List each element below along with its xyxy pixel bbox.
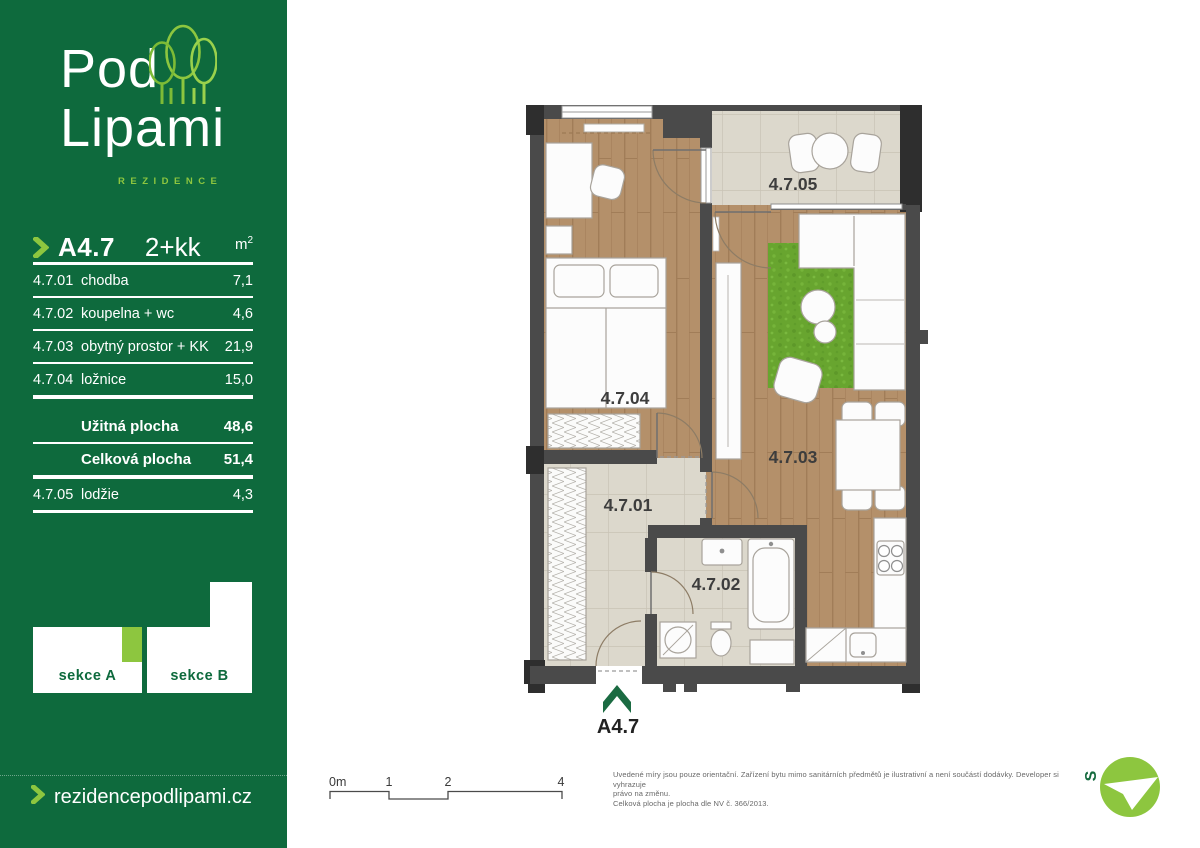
hallway-label: 4.7.01 [604,495,653,515]
dishwasher [806,628,846,662]
loggia-label: 4.7.05 [769,174,818,194]
radiator [584,124,644,132]
entry-opening [596,666,642,684]
svg-text:0m: 0m [329,775,346,789]
cabinet [716,263,741,459]
entry-unit-label: A4.7 [597,716,639,738]
desk [546,143,592,218]
living-room-label: 4.7.03 [769,447,818,467]
svg-text:1: 1 [386,775,393,789]
wardrobe [548,468,586,660]
dresser [548,414,640,448]
washing-machine [660,622,696,658]
svg-text:2: 2 [445,775,452,789]
stove [877,541,904,575]
scale-bar: 0m 1 2 4 [329,775,565,799]
bathtub [748,539,794,629]
dining-table [836,420,900,490]
entry-arrow-icon [603,685,631,713]
living-loggia-window [771,204,902,209]
svg-text:4: 4 [558,775,565,789]
toilet [711,622,731,656]
compass-south-label: S [1083,770,1100,781]
coffee-table [801,290,835,324]
entry-marker: A4.7 [597,685,639,738]
disclaimer-line: právo na změnu. [613,789,1075,799]
loggia-chair [849,132,882,174]
bath-niche [750,640,794,664]
loggia-table [812,133,848,169]
bathroom-label: 4.7.02 [692,574,741,594]
bedroom-label: 4.7.04 [601,388,650,408]
compass: S [1083,757,1160,817]
disclaimer-line: Uvedené míry jsou pouze orientační. Zaří… [613,770,1075,789]
nightstand [546,226,572,254]
disclaimer-line: Celková plocha je plocha dle NV č. 366/2… [613,799,1075,809]
disclaimer: Uvedené míry jsou pouze orientační. Zaří… [613,770,1075,808]
floor-plan: 4.7.04 4.7.05 4.7.03 4.7.01 4.7.02 A4.7 … [0,0,1200,848]
side-table [814,321,836,343]
double-bed [546,258,666,408]
